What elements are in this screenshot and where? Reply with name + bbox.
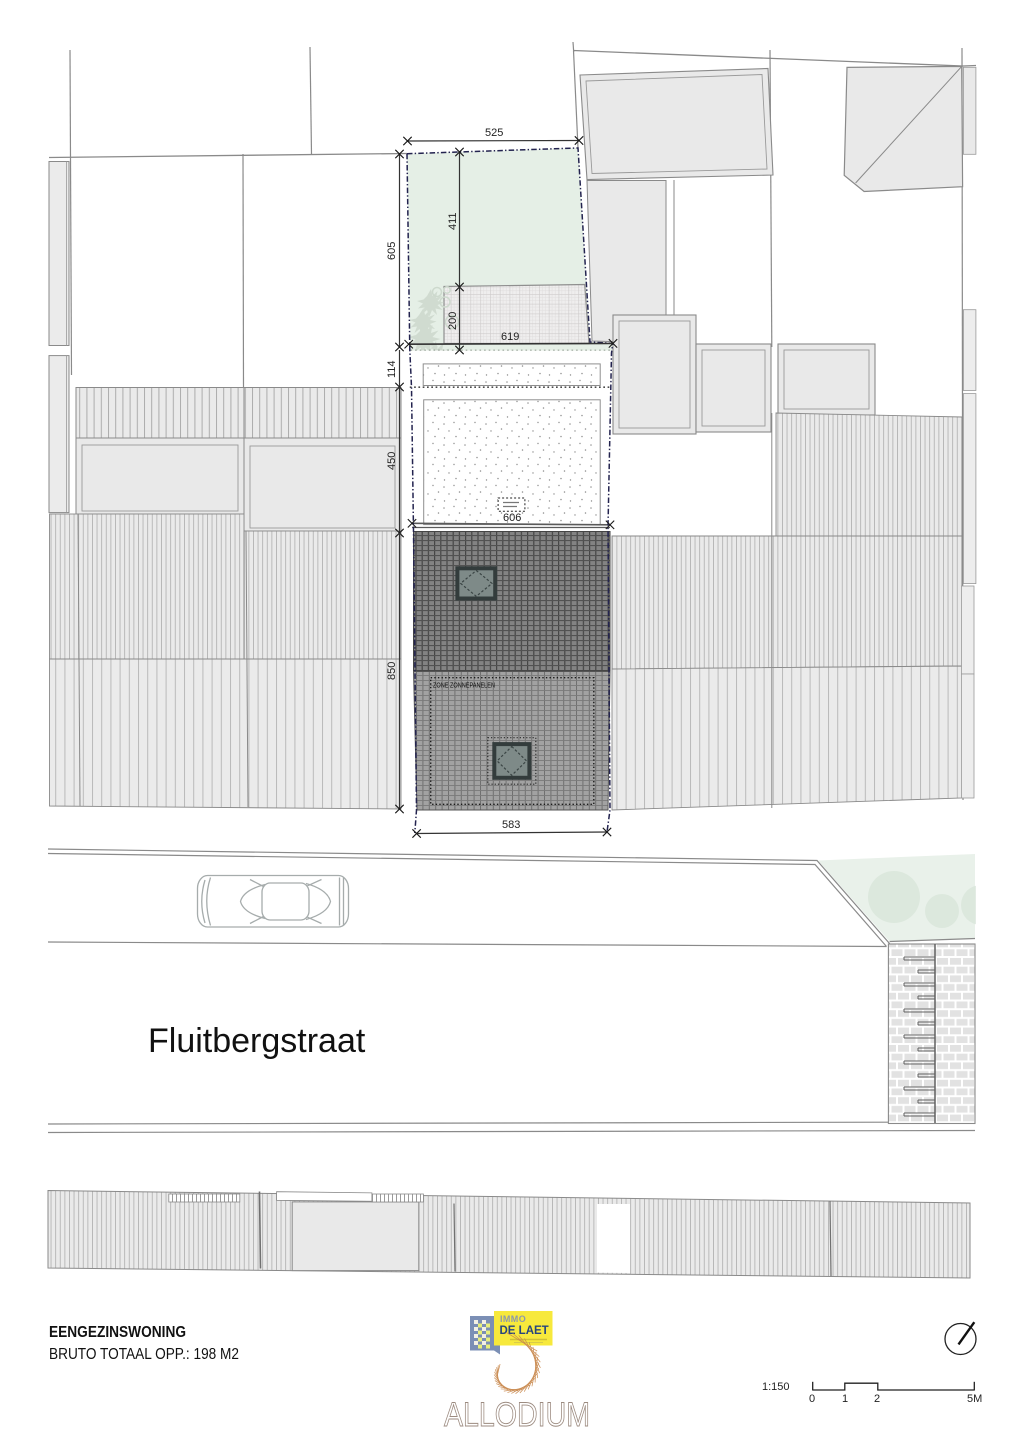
svg-text:411: 411 (447, 212, 459, 230)
svg-text:EENGEZINSWONING: EENGEZINSWONING (49, 1324, 186, 1341)
svg-text:619: 619 (501, 331, 519, 343)
svg-text:850: 850 (386, 662, 398, 680)
svg-text:1:150: 1:150 (762, 1381, 790, 1393)
svg-text:605: 605 (386, 242, 398, 260)
svg-text:BRUTO TOTAAL OPP.: 198 M2: BRUTO TOTAAL OPP.: 198 M2 (49, 1346, 239, 1363)
svg-text:583: 583 (502, 819, 520, 831)
svg-text:2: 2 (874, 1393, 880, 1405)
svg-text:450: 450 (386, 452, 398, 470)
svg-text:200: 200 (447, 312, 459, 330)
svg-text:IMMO: IMMO (500, 1314, 526, 1324)
svg-text:0: 0 (809, 1393, 815, 1405)
svg-text:606: 606 (503, 512, 521, 524)
svg-text:525: 525 (485, 127, 503, 139)
svg-text:Fluitbergstraat: Fluitbergstraat (148, 1022, 366, 1060)
svg-text:114: 114 (386, 360, 398, 378)
svg-text:1: 1 (842, 1393, 848, 1405)
svg-text:ALLODIUM: ALLODIUM (444, 1396, 590, 1434)
svg-text:DE LAET: DE LAET (500, 1325, 549, 1337)
svg-text:5M: 5M (967, 1393, 982, 1405)
svg-text:ZONE ZONNEPANELEN: ZONE ZONNEPANELEN (433, 681, 495, 690)
